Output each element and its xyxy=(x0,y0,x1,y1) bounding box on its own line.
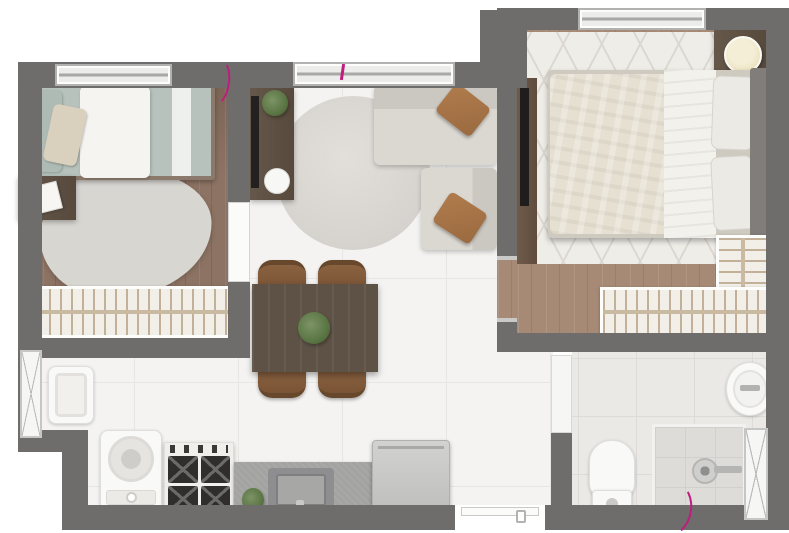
dining-table-plant xyxy=(298,312,330,344)
stove-burners xyxy=(168,456,230,512)
dining-chair-3 xyxy=(258,368,306,398)
wall-master-bottom xyxy=(497,333,770,352)
bedroom1-door-leaf xyxy=(228,202,250,282)
bedroom1-wardrobe xyxy=(24,286,244,338)
master-doorframe-top xyxy=(497,256,517,260)
stove-knobs xyxy=(170,445,228,453)
floor-plan xyxy=(0,0,789,533)
burner xyxy=(168,456,198,483)
single-bed-blanket xyxy=(148,88,211,176)
living-room-window xyxy=(293,62,455,86)
refrigerator-handle xyxy=(378,446,444,449)
sideboard-plant xyxy=(262,90,288,116)
wall-bedroom1-bottom xyxy=(18,338,250,358)
entrance-door-handle xyxy=(516,510,526,523)
master-closet-horizontal-arm xyxy=(600,287,770,337)
washing-machine-knob xyxy=(126,492,137,503)
entrance-door-leaf xyxy=(461,507,539,516)
master-pillow-1 xyxy=(711,75,756,150)
speaker xyxy=(264,168,290,194)
tv xyxy=(251,96,259,188)
master-tv xyxy=(520,88,529,206)
bathroom-door-leaf xyxy=(551,355,572,433)
master-bedroom-window xyxy=(578,8,706,30)
shower-arm xyxy=(714,466,742,473)
burner xyxy=(201,456,231,483)
washing-machine-drum xyxy=(108,436,154,482)
wall-living-master-upper xyxy=(497,30,517,258)
master-doorframe-bottom xyxy=(497,318,517,322)
double-bed-duvet xyxy=(550,74,668,234)
bedroom1-window xyxy=(55,64,172,86)
wall-bedroom1-upper xyxy=(228,62,250,202)
wall-right xyxy=(766,8,789,530)
laundry-tub-basin xyxy=(55,373,87,417)
master-doorway-threshold xyxy=(497,258,517,320)
wall-bathroom-left xyxy=(551,433,572,530)
bathroom-faucet xyxy=(740,385,760,391)
master-closet-vertical-arm xyxy=(716,235,770,293)
wall-bottom-left-span xyxy=(62,505,455,530)
double-bed-sheet xyxy=(664,70,716,238)
single-bed-white-duvet xyxy=(80,86,150,178)
outside-notch xyxy=(18,452,62,533)
dining-chair-4 xyxy=(318,368,366,398)
bathroom-window xyxy=(744,428,768,520)
laundry-window xyxy=(20,350,42,438)
